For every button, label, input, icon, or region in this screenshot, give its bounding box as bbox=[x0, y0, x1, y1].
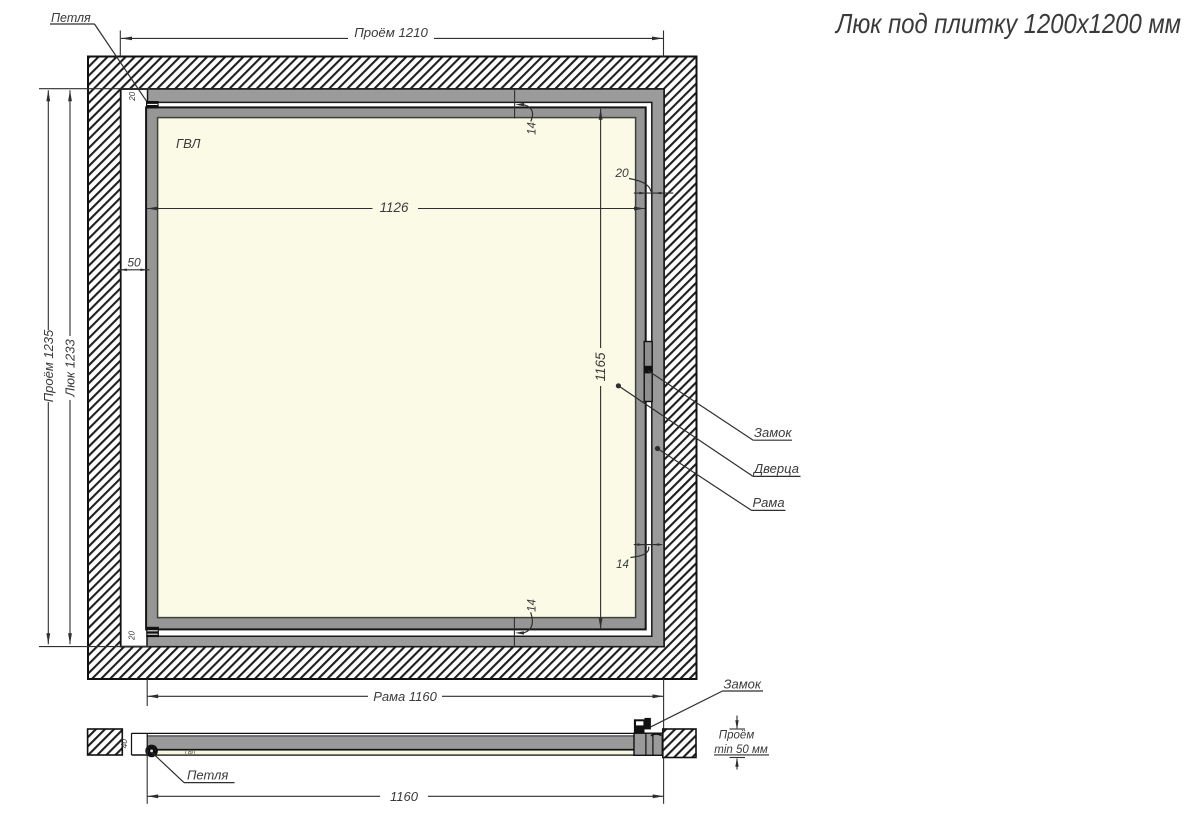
svg-text:50: 50 bbox=[127, 256, 141, 270]
svg-text:ГВЛ: ГВЛ bbox=[176, 136, 200, 151]
svg-text:Проём 1235: Проём 1235 bbox=[41, 329, 56, 402]
svg-text:20: 20 bbox=[128, 91, 137, 101]
svg-text:Дверца: Дверца bbox=[752, 461, 799, 476]
svg-text:ГВЛ: ГВЛ bbox=[185, 750, 196, 756]
svg-text:Петля: Петля bbox=[51, 11, 91, 25]
svg-text:Люк под плитку 1200x1200 мм: Люк под плитку 1200x1200 мм bbox=[834, 8, 1181, 39]
svg-text:20: 20 bbox=[614, 166, 629, 180]
svg-text:40: 40 bbox=[119, 739, 129, 749]
svg-text:14: 14 bbox=[526, 599, 538, 612]
svg-text:14: 14 bbox=[527, 122, 539, 135]
svg-text:Люк 1233: Люк 1233 bbox=[63, 339, 78, 398]
svg-text:min 50 мм: min 50 мм bbox=[714, 744, 768, 756]
svg-text:Петля: Петля bbox=[187, 768, 228, 783]
svg-text:Замок: Замок bbox=[724, 677, 762, 692]
svg-text:1126: 1126 bbox=[380, 200, 409, 215]
svg-text:Проём 1210: Проём 1210 bbox=[354, 25, 428, 40]
svg-text:Проём: Проём bbox=[719, 730, 755, 742]
svg-text:20: 20 bbox=[127, 631, 136, 641]
svg-text:Рама: Рама bbox=[753, 495, 785, 510]
svg-text:Рама 1160: Рама 1160 bbox=[373, 689, 437, 704]
svg-text:Замок: Замок bbox=[754, 425, 792, 440]
svg-text:14: 14 bbox=[616, 559, 629, 571]
svg-text:1165: 1165 bbox=[593, 352, 608, 381]
svg-text:1160: 1160 bbox=[390, 789, 419, 804]
